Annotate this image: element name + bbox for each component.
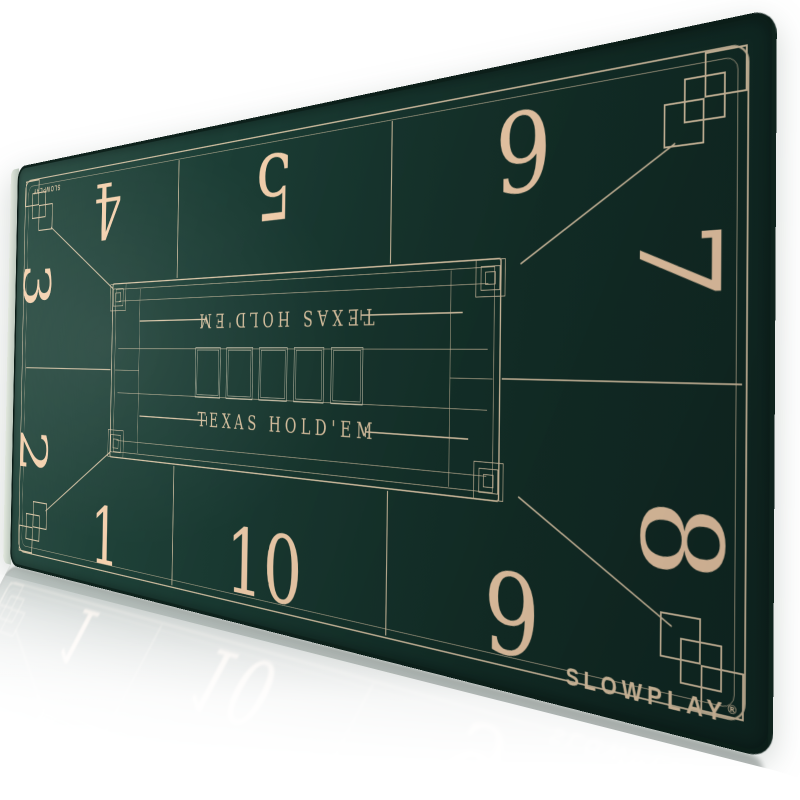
seat-number-10: 10 — [226, 516, 303, 623]
ornament-square — [660, 611, 701, 665]
label-rule-tick — [206, 315, 207, 324]
community-card-slot-2 — [226, 347, 253, 400]
seat-number-6: 6 — [494, 88, 552, 207]
corner-ornament-top-right — [649, 14, 773, 167]
community-card-slot-3 — [258, 347, 287, 402]
registered-trademark-symbol: ® — [728, 700, 737, 717]
seat-number-7: 7 — [623, 218, 735, 303]
corner-ornament-bottom-right — [644, 592, 769, 754]
ornament-square — [33, 501, 47, 530]
pit-ornament-bottom-left — [108, 429, 124, 458]
corner-ornament-top-left — [18, 161, 59, 243]
community-card-slot-5 — [330, 347, 363, 405]
label-rule-tick — [206, 416, 207, 425]
community-card-slot-1 — [195, 347, 221, 398]
seat-number-5: 5 — [254, 136, 293, 232]
label-rule-tick — [360, 310, 361, 320]
ornament-square — [663, 98, 704, 149]
poker-mat: TEXAS HOLD'EM TEXAS HOLD'EM 1 2 3 4 — [10, 8, 777, 760]
product-photo-scene: TEXAS HOLD'EM TEXAS HOLD'EM 1 2 3 4 — [0, 0, 800, 800]
texas-holdem-label-rotated: TEXAS HOLD'EM — [196, 304, 375, 330]
pit-ornament-top-right — [475, 258, 505, 297]
seat-number-4: 4 — [93, 168, 122, 249]
pit-ornament-top-left — [110, 283, 126, 311]
seat-number-9: 9 — [483, 556, 541, 679]
seat-number-1: 1 — [90, 496, 119, 580]
label-rule-tick — [365, 427, 366, 438]
community-card-slot-4 — [293, 347, 324, 403]
pit-ornament-bottom-right — [473, 461, 503, 502]
mat-shadow-wrap: TEXAS HOLD'EM TEXAS HOLD'EM 1 2 3 4 — [0, 0, 800, 800]
seat-number-3: 3 — [18, 261, 56, 309]
seat-number-2: 2 — [14, 427, 52, 477]
corner-ornament-bottom-left — [11, 488, 52, 573]
mat-felt-surface: TEXAS HOLD'EM TEXAS HOLD'EM 1 2 3 4 — [10, 8, 777, 760]
